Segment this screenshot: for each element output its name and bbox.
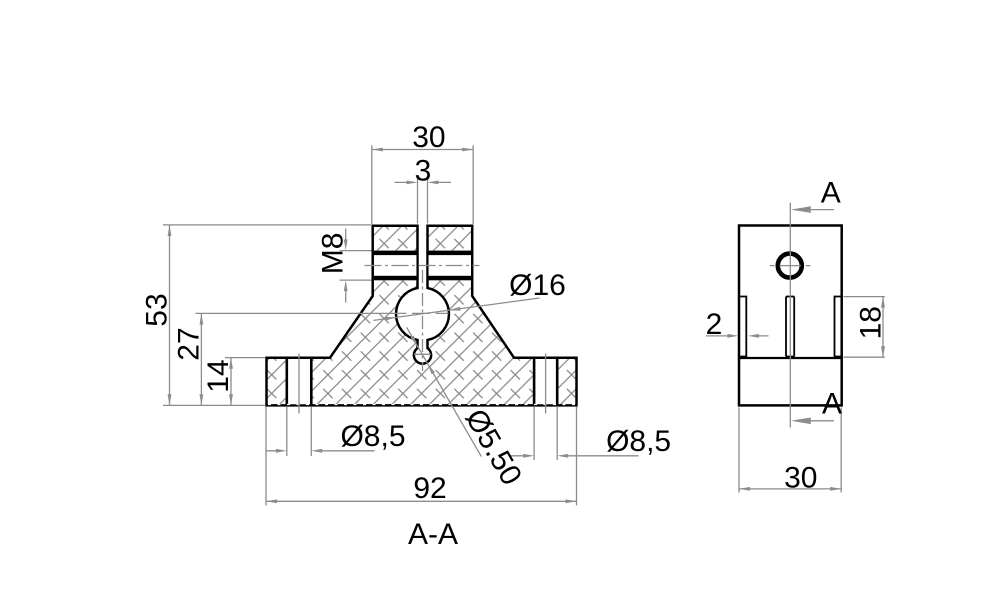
svg-text:92: 92 xyxy=(413,472,446,505)
svg-text:53: 53 xyxy=(141,293,174,326)
svg-text:14: 14 xyxy=(202,359,235,392)
svg-text:A-A: A-A xyxy=(408,518,458,551)
svg-text:Ø8,5: Ø8,5 xyxy=(340,420,405,453)
svg-text:A: A xyxy=(821,176,841,209)
svg-text:30: 30 xyxy=(784,462,817,495)
svg-text:Ø16: Ø16 xyxy=(509,269,566,302)
svg-text:M8: M8 xyxy=(317,233,350,275)
svg-text:27: 27 xyxy=(172,327,205,360)
svg-text:3: 3 xyxy=(415,155,432,188)
svg-text:Ø8,5: Ø8,5 xyxy=(606,425,671,458)
svg-text:18: 18 xyxy=(854,306,887,339)
svg-text:A: A xyxy=(822,388,842,421)
svg-text:30: 30 xyxy=(412,121,445,154)
svg-text:2: 2 xyxy=(706,308,723,341)
